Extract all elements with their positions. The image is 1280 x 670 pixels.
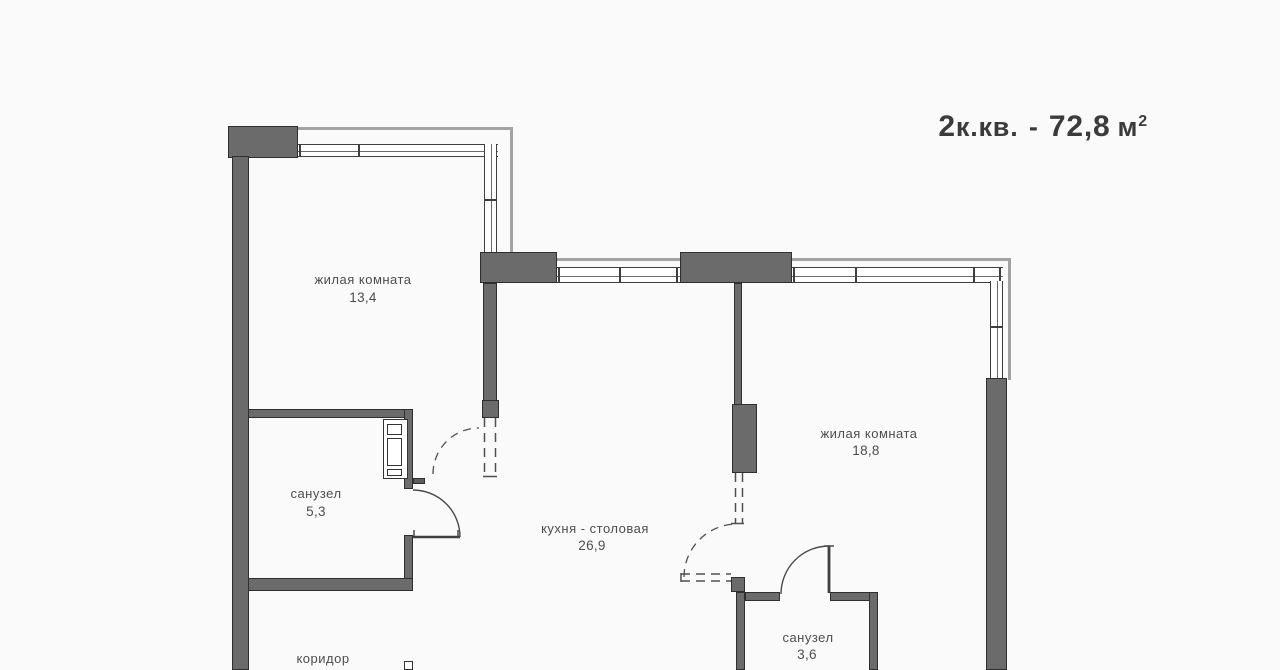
wall-kitchen-left xyxy=(483,283,497,401)
title-area-value: 72,8 xyxy=(1049,110,1111,143)
window-mullion xyxy=(676,268,678,282)
window-living1-top xyxy=(298,144,498,157)
wall-pier-mid xyxy=(680,252,792,283)
window-glass-line xyxy=(298,151,498,152)
wall-bathroom1-right-lower xyxy=(404,535,413,579)
door-arc-bathroom1 xyxy=(413,490,460,537)
facade-line-right-v xyxy=(1008,258,1011,380)
label-bathroom1: санузел xyxy=(290,486,341,501)
dashed-partition-right-h xyxy=(681,574,731,581)
floor-plan-canvas: жилая комната 13,4 санузел 5,3 кухня - с… xyxy=(0,0,1280,670)
area-bathroom2: 3,6 xyxy=(797,647,817,662)
dashed-door-arc-left xyxy=(433,428,479,474)
area-living1: 13,4 xyxy=(349,290,376,305)
window-mullion xyxy=(991,326,1002,328)
area-living2: 18,8 xyxy=(852,443,879,458)
wall-block-corridor xyxy=(731,577,745,592)
window-mullion xyxy=(793,268,795,282)
window-living2-right xyxy=(990,281,1003,378)
window-mullion xyxy=(973,268,975,282)
wall-bathroom2-left xyxy=(736,592,745,670)
wall-bathroom2-right xyxy=(869,592,878,670)
facade-line-top-left-h xyxy=(298,127,513,130)
wall-bathroom2-top-left xyxy=(745,592,780,601)
wall-pier-kitchen-left xyxy=(480,252,557,283)
window-mullion xyxy=(558,268,560,282)
wall-bathroom1-bottom xyxy=(248,578,413,591)
wall-block-kitchen-left-end xyxy=(482,400,499,418)
dashed-partition-left xyxy=(485,418,496,476)
title-separator: - xyxy=(1021,112,1047,142)
door-arc-bathroom2 xyxy=(781,546,829,594)
plumbing-shaft-fixture xyxy=(383,419,408,479)
wall-living2-right xyxy=(986,378,1007,670)
window-kitchen-top xyxy=(557,267,680,283)
facade-line-top-left-v xyxy=(510,127,513,255)
doors-overlay xyxy=(0,0,1280,670)
entry-door-jamb xyxy=(404,661,413,670)
label-corridor: коридор xyxy=(296,651,349,666)
window-living2-top xyxy=(792,267,1003,283)
window-glass-line xyxy=(997,281,998,378)
plan-title: 2к.кв. - 72,8м2 xyxy=(938,110,1148,144)
area-kitchen: 26,9 xyxy=(578,538,605,553)
wall-kitchen-living2-block xyxy=(732,404,757,473)
wall-top-left-block xyxy=(228,126,298,158)
dashed-door-arc-right xyxy=(684,524,737,577)
window-glass-line xyxy=(792,276,1003,277)
fixture-compartment xyxy=(387,438,402,466)
window-mullion xyxy=(358,145,360,156)
title-room-count: 2 xyxy=(938,110,956,143)
title-unit: м xyxy=(1118,112,1139,142)
label-living2: жилая комната xyxy=(820,426,917,441)
fixture-compartment xyxy=(387,469,402,476)
door-leaf-ticks-bathroom1 xyxy=(414,530,458,537)
label-living1: жилая комната xyxy=(314,272,411,287)
fixture-compartment xyxy=(387,424,402,435)
wall-living1-bathroom1 xyxy=(248,409,412,418)
window-mullion xyxy=(855,268,857,282)
label-kitchen: кухня - столовая xyxy=(541,521,649,536)
title-unit-superscript: 2 xyxy=(1138,113,1148,130)
window-living1-right xyxy=(484,144,497,256)
window-mullion xyxy=(299,145,301,156)
window-mullion xyxy=(485,199,496,201)
area-bathroom1: 5,3 xyxy=(306,504,326,519)
wall-exterior-left xyxy=(232,156,249,670)
window-mullion xyxy=(619,268,621,282)
dashed-partition-right-v xyxy=(736,473,743,523)
door-stop-tick xyxy=(413,478,425,484)
window-mullion xyxy=(999,268,1001,282)
label-bathroom2: санузел xyxy=(782,630,833,645)
title-type: к.кв. xyxy=(956,112,1019,142)
wall-kitchen-living2-thin xyxy=(734,283,742,405)
